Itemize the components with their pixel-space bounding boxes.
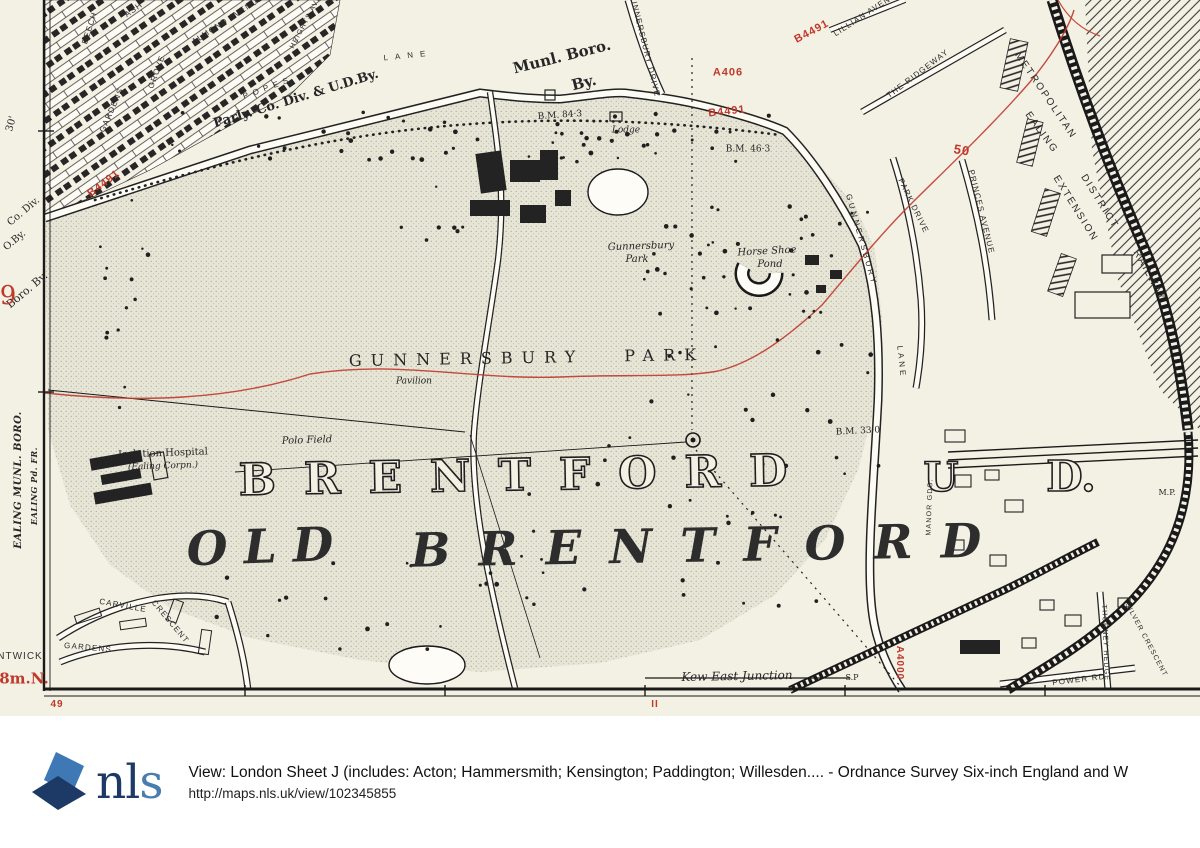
map-canvas: [0, 0, 1200, 716]
viewer-title: View: London Sheet J (includes: Acton; H…: [188, 764, 1128, 782]
nls-logo-text: nls: [96, 755, 162, 810]
nls-logo[interactable]: nls: [30, 750, 162, 814]
viewer-url[interactable]: http://maps.nls.uk/view/102345855: [188, 786, 1128, 801]
south-pond: [389, 646, 465, 684]
footer-bar: nls View: London Sheet J (includes: Acto…: [0, 716, 1200, 848]
map-viewport[interactable]: ALMOND AVENUEBEECHASHGARDENSGROVEHEIGHTS…: [0, 0, 1200, 716]
round-pond: [588, 169, 648, 215]
nls-logo-mark: [30, 750, 92, 814]
